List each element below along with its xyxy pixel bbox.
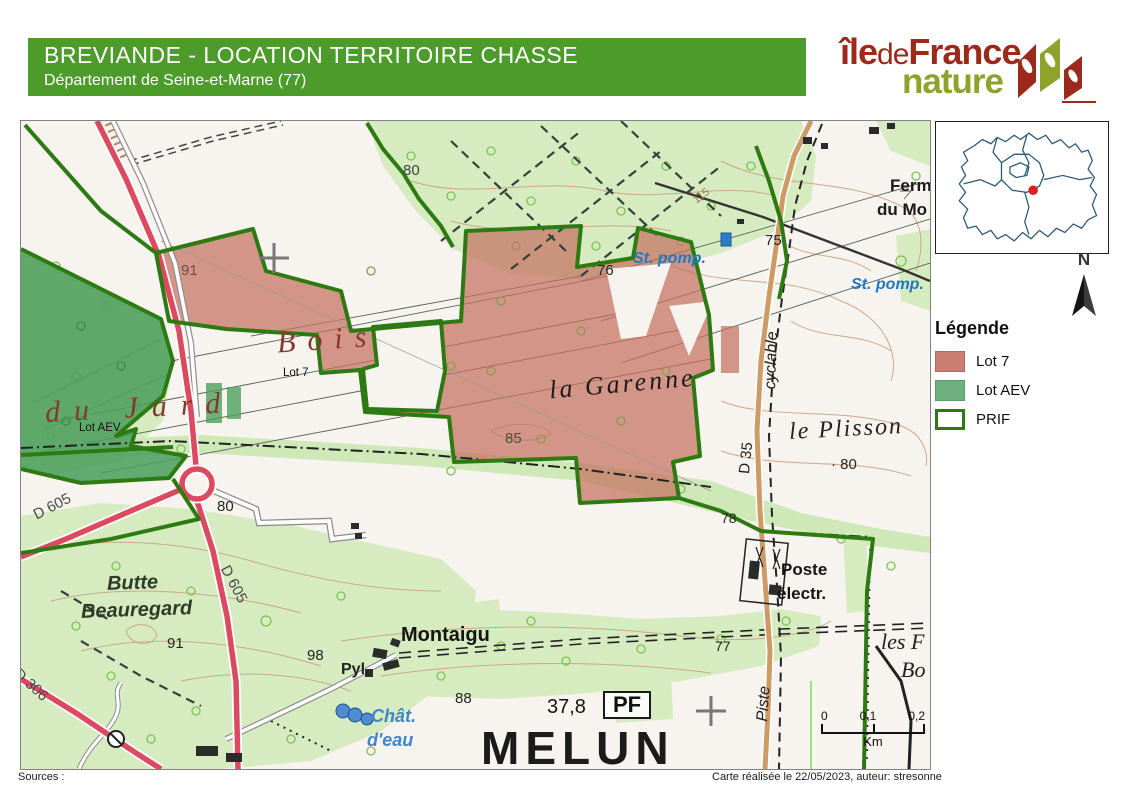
map-label-montaigu: Montaigu (401, 625, 490, 645)
legend-label: PRIF (976, 411, 1010, 428)
map-label-d35: D 35 (737, 441, 755, 474)
map-label-le-plisson: le Plisson (788, 414, 903, 444)
map-label-elev-77: 77 (715, 639, 731, 653)
legend-item-prif: PRIF (935, 409, 1115, 430)
inset-map (935, 121, 1109, 254)
legend-item-lot-aev: Lot AEV (935, 380, 1115, 401)
map-label-elev-88: 88 (455, 691, 472, 706)
north-label: N (1062, 250, 1106, 270)
map-label-pf: PF (603, 691, 651, 719)
map-label-poste: Poste (781, 561, 827, 578)
legend-title: Légende (935, 318, 1115, 339)
map-label-pyl: Pyl. (341, 662, 369, 678)
map-label-electr: électr. (777, 585, 826, 602)
map-label-lot-aev: Lot AEV (79, 423, 121, 435)
map-label-lot7: Lot 7 (283, 368, 309, 380)
title-banner: BREVIANDE - LOCATION TERRITOIRE CHASSE D… (28, 38, 806, 96)
credit-note: Carte réalisée le 22/05/2023, auteur: st… (712, 771, 942, 783)
map-label-elev-98: 98 (307, 648, 324, 663)
scale-bar-line (821, 724, 925, 734)
scale-unit: Km (821, 734, 925, 749)
map-label-butte: Butte (107, 572, 159, 594)
map-label-elev-78: 78 (721, 511, 737, 525)
legend: Légende Lot 7 Lot AEV PRIF (935, 318, 1115, 438)
map-label-melun: MELUN (481, 725, 675, 770)
idf-nature-logo: îledeFrance nature (840, 34, 1040, 99)
map-label-elev-80-forest: 80 (403, 163, 420, 178)
scale-tick-02: 0,2 (908, 709, 925, 723)
legend-item-lot7: Lot 7 (935, 351, 1115, 372)
map-label-elev-91-butte: 91 (167, 636, 184, 651)
map-label-ferme-2: du Mo (877, 201, 927, 218)
map-label-elev-91: 91 (181, 263, 198, 278)
map-label-les-f: les F (881, 631, 924, 653)
scale-tick-01: 0,1 (860, 709, 877, 723)
map-title: BREVIANDE - LOCATION TERRITOIRE CHASSE (44, 42, 806, 69)
map-label-elev-85: 85 (505, 431, 522, 446)
lot7-swatch (935, 351, 965, 372)
map-sheet: BREVIANDE - LOCATION TERRITOIRE CHASSE D… (0, 0, 1122, 794)
scale-tick-0: 0 (821, 709, 828, 723)
map-label-piste: Piste (755, 686, 773, 723)
map-label-elev-80-plisson: · 80 (831, 457, 857, 472)
map-label-bo: Bo (901, 659, 925, 681)
logo-ile: île (840, 31, 877, 72)
map-label-st-pomp-1: St. pomp. (633, 251, 706, 267)
sources-note: Sources : (18, 771, 64, 783)
map-label-beauregard: Beauregard (81, 598, 193, 622)
map-label-cyclable: cyclable (763, 331, 781, 389)
scale-bar: 0 0,1 0,2 Km (821, 709, 925, 749)
north-arrow: N (1062, 250, 1106, 323)
legend-label: Lot 7 (976, 353, 1009, 370)
pump-station-icon (721, 233, 731, 246)
prif-swatch (935, 409, 965, 430)
legend-label: Lot AEV (976, 382, 1030, 399)
map-label-chat: Chât. (371, 707, 416, 725)
map-label-st-pomp-2: St. pomp. (851, 277, 924, 293)
idf-region-outline (936, 122, 1105, 250)
map-label-elev-378: 37,8 (547, 697, 586, 717)
map-label-bois: Bois (276, 322, 379, 359)
map-canvas: 80 115 Ferm du Mo 75 St. pomp. St. pomp.… (20, 120, 931, 770)
map-label-ferme-1: Ferm (890, 177, 931, 194)
location-dot (1028, 185, 1038, 195)
map-label-elev-80-roundabout: 80 (217, 499, 234, 514)
map-graphics (21, 121, 930, 769)
map-label-elev-75: 75 (765, 233, 782, 248)
lot-aev-swatch (935, 380, 965, 401)
logo-houses-icon (1014, 28, 1100, 108)
map-label-deau: d'eau (367, 731, 413, 749)
map-subtitle: Département de Seine-et-Marne (77) (44, 72, 806, 90)
north-arrow-icon (1064, 270, 1104, 318)
map-label-elev-76: 76 (597, 263, 614, 278)
